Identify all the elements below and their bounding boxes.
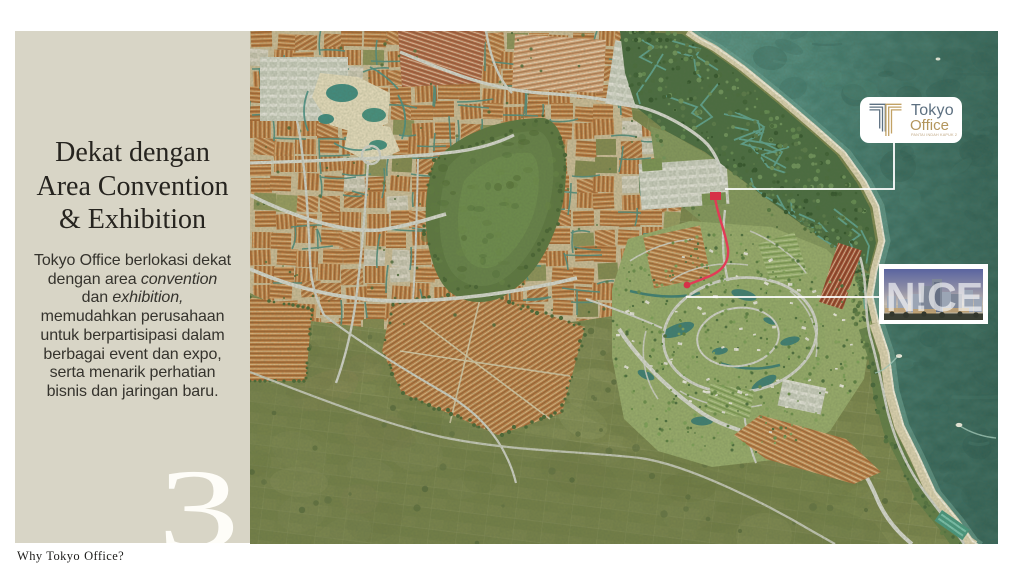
svg-text:N!CE: N!CE <box>886 274 982 320</box>
